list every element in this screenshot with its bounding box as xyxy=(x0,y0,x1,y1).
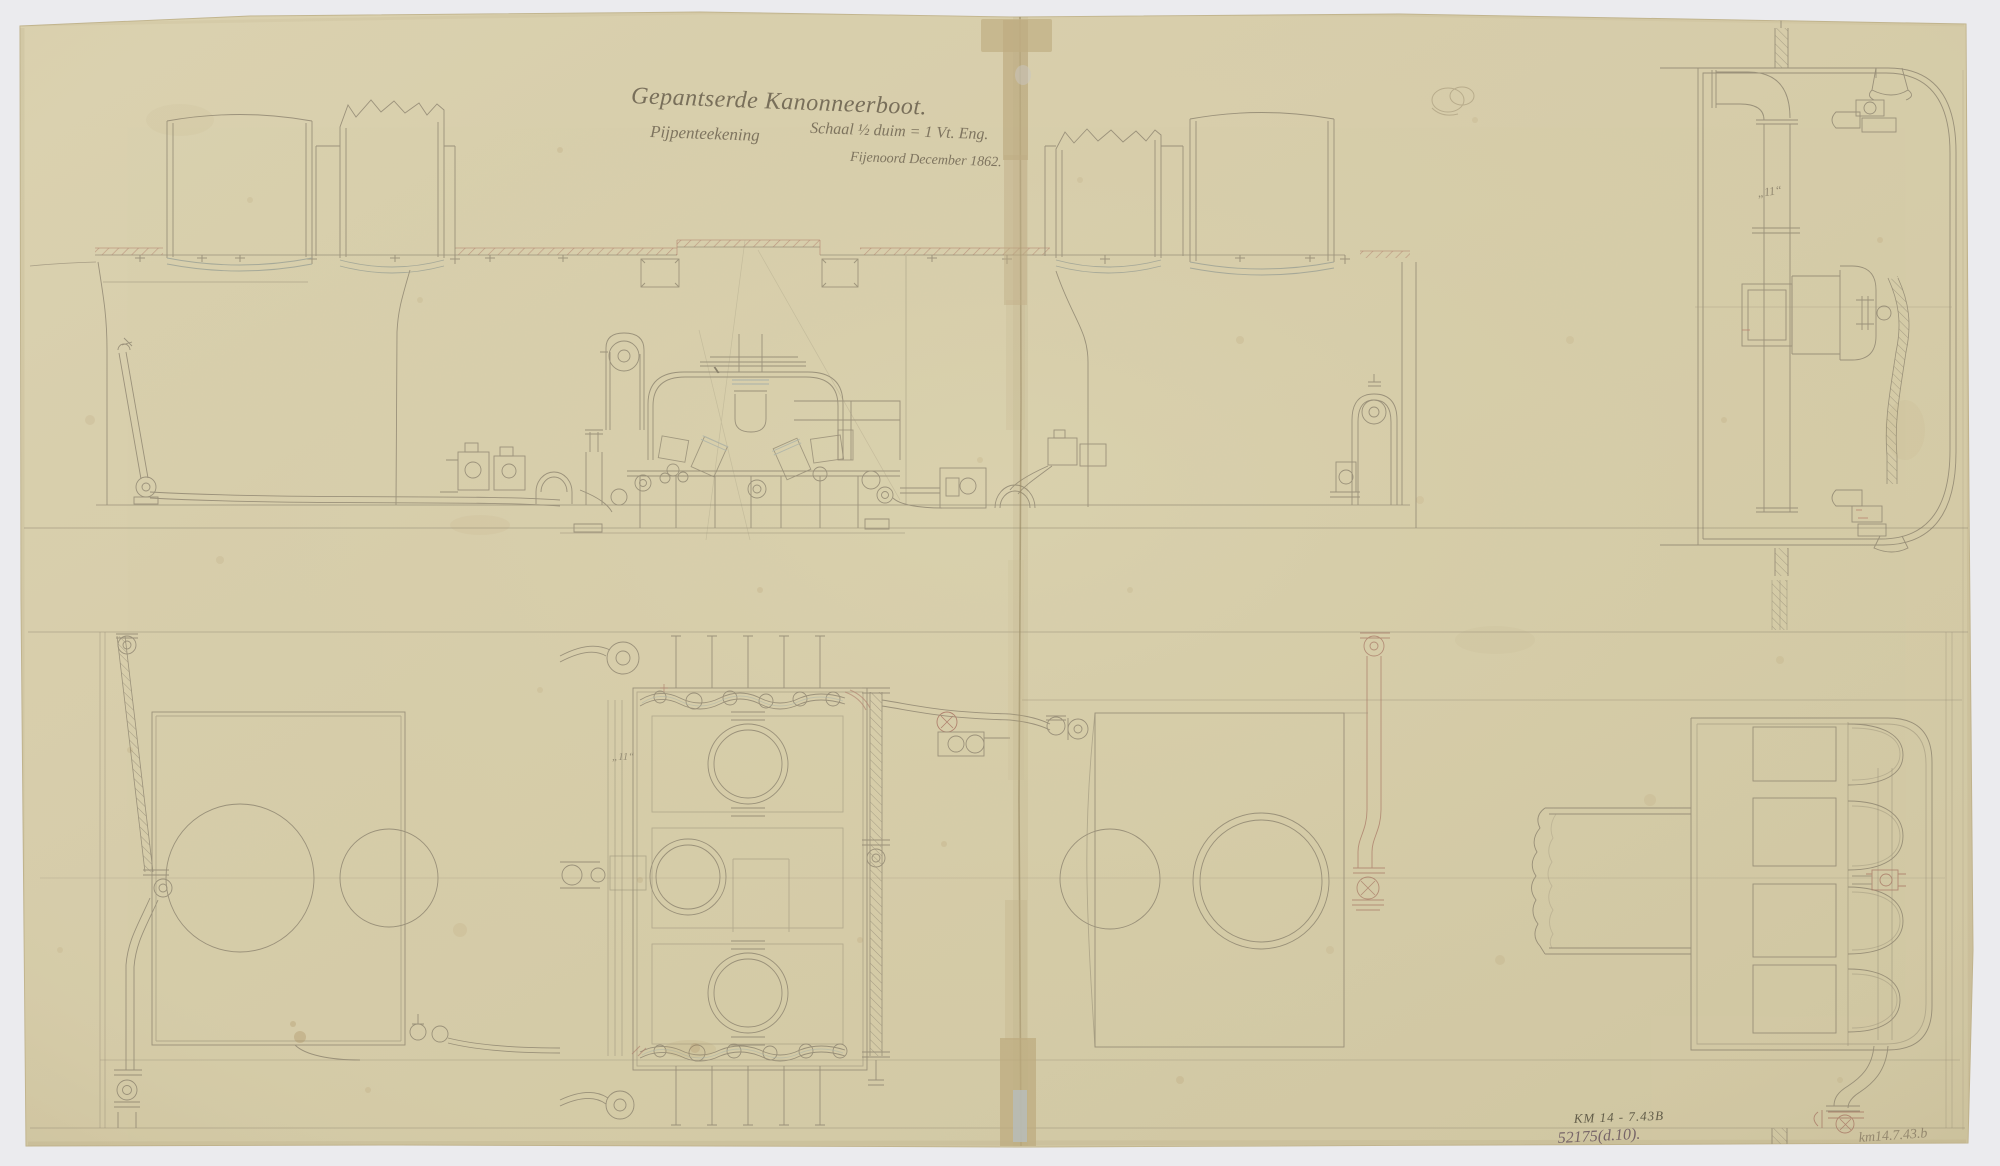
svg-text:Pijpenteekening: Pijpenteekening xyxy=(649,122,760,145)
svg-text:KM 14 - 7.43B: KM 14 - 7.43B xyxy=(1573,1108,1665,1126)
